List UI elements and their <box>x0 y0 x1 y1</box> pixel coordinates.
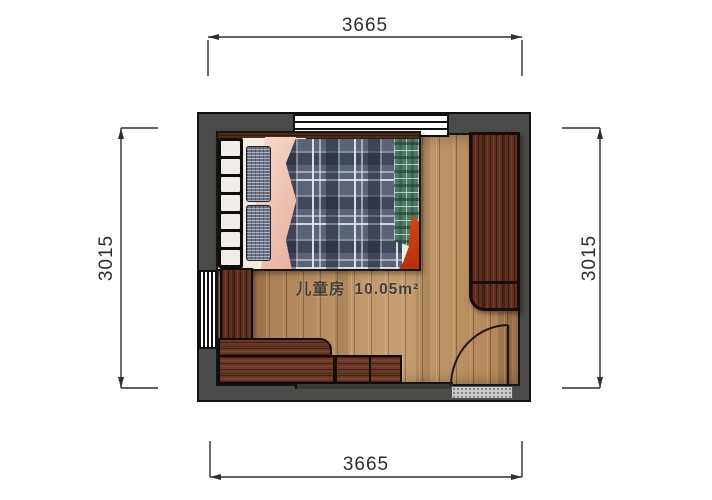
headboard-slat <box>221 214 240 229</box>
room-label: 儿童房 10.05m² <box>296 277 419 299</box>
low-cabinet <box>335 355 402 384</box>
window-glazing-line <box>207 272 209 347</box>
room-area: 10.05m² <box>355 281 420 299</box>
room-name: 儿童房 <box>296 277 346 299</box>
window-glazing-line <box>211 272 213 347</box>
headboard-slat <box>221 232 240 247</box>
dimension-right-value: 3015 <box>579 235 601 281</box>
window-left <box>199 270 217 349</box>
door-threshold <box>451 386 513 399</box>
dimension-top <box>208 34 522 76</box>
wardrobe-divider <box>472 281 517 284</box>
dimension-left <box>118 128 158 388</box>
floor-plan-canvas: 3665 3665 3015 3015 <box>0 0 712 500</box>
headboard-slat <box>221 250 240 265</box>
window-glazing-line <box>295 128 447 130</box>
headboard-slat <box>221 177 240 192</box>
cabinet-divider <box>369 357 371 382</box>
window-glazing-line <box>203 272 205 347</box>
headboard <box>218 138 243 268</box>
window-glazing-line <box>295 121 447 123</box>
pillow <box>246 205 271 261</box>
desk-drawers <box>218 355 335 384</box>
pillow <box>246 146 271 202</box>
dimension-bottom-value: 3665 <box>343 454 389 476</box>
wardrobe <box>469 132 520 311</box>
bed <box>216 131 421 271</box>
dimension-left-value: 3015 <box>96 235 118 281</box>
headboard-slat <box>221 195 240 210</box>
dimension-top-value: 3665 <box>342 15 388 37</box>
headboard-slat <box>221 159 240 174</box>
side-cabinet <box>220 268 253 340</box>
headboard-slat <box>221 141 240 156</box>
